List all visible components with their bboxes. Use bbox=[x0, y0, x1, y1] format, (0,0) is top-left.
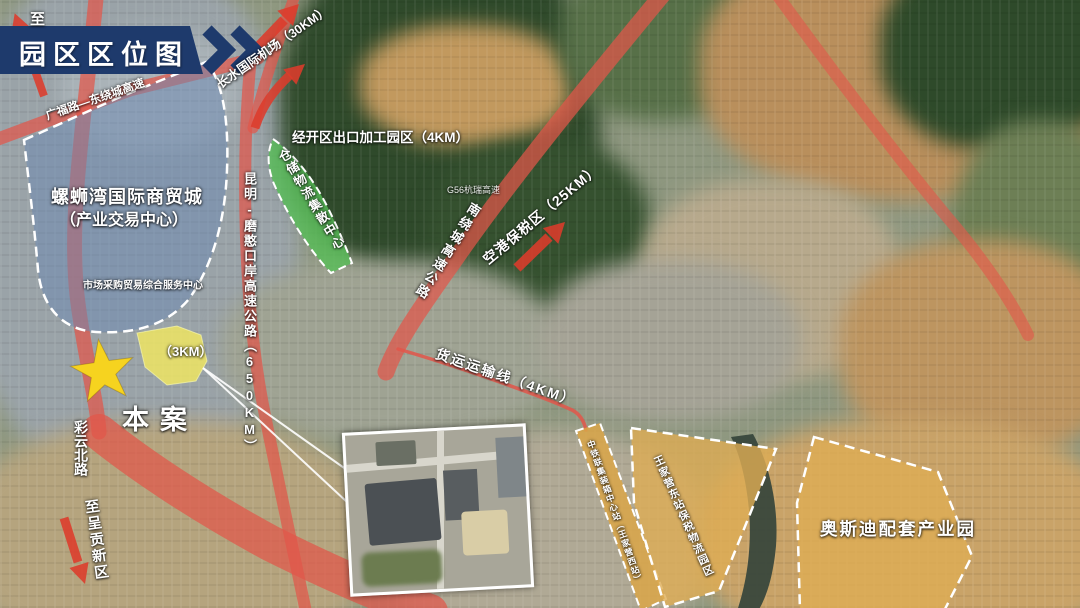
inset-building bbox=[375, 440, 416, 466]
label-jingkai-zone: 经开区出口加工园区（4KM） bbox=[292, 126, 469, 146]
label-market-center: 市场采购贸易综合服务中心 bbox=[83, 277, 203, 292]
label-aosidi-zone: 奥斯迪配套产业园 bbox=[820, 516, 976, 541]
road-ring bbox=[386, 0, 668, 372]
inset-building bbox=[495, 436, 526, 497]
label-dist-3km: （3KM） bbox=[159, 341, 212, 360]
inset-building bbox=[461, 509, 509, 555]
page-title: 园区区位图 bbox=[12, 33, 196, 72]
park-location-map: 园区区位图 至 长水国际机场（30KM） 广福路—东绕城高速 经开区出口加工园区… bbox=[0, 0, 1080, 608]
inset-greenery bbox=[361, 549, 443, 587]
arrow-chenggong bbox=[64, 518, 78, 562]
inset-building bbox=[364, 478, 441, 546]
site-closeup-inset bbox=[342, 423, 534, 596]
label-g56-road: G56杭瑞高速 bbox=[447, 183, 500, 196]
label-luosiwan-sub: （产业交易中心） bbox=[60, 206, 188, 230]
road-east bbox=[772, 0, 1028, 335]
arrow-chenggong-head bbox=[70, 562, 89, 584]
label-caiyun-road: 彩云北路 bbox=[71, 420, 91, 476]
label-site: 本案 bbox=[122, 398, 198, 437]
label-to-top: 至 bbox=[30, 8, 45, 29]
label-kunmo-road: 昆明-磨憨口岸高速公路（650KM） bbox=[240, 172, 259, 454]
